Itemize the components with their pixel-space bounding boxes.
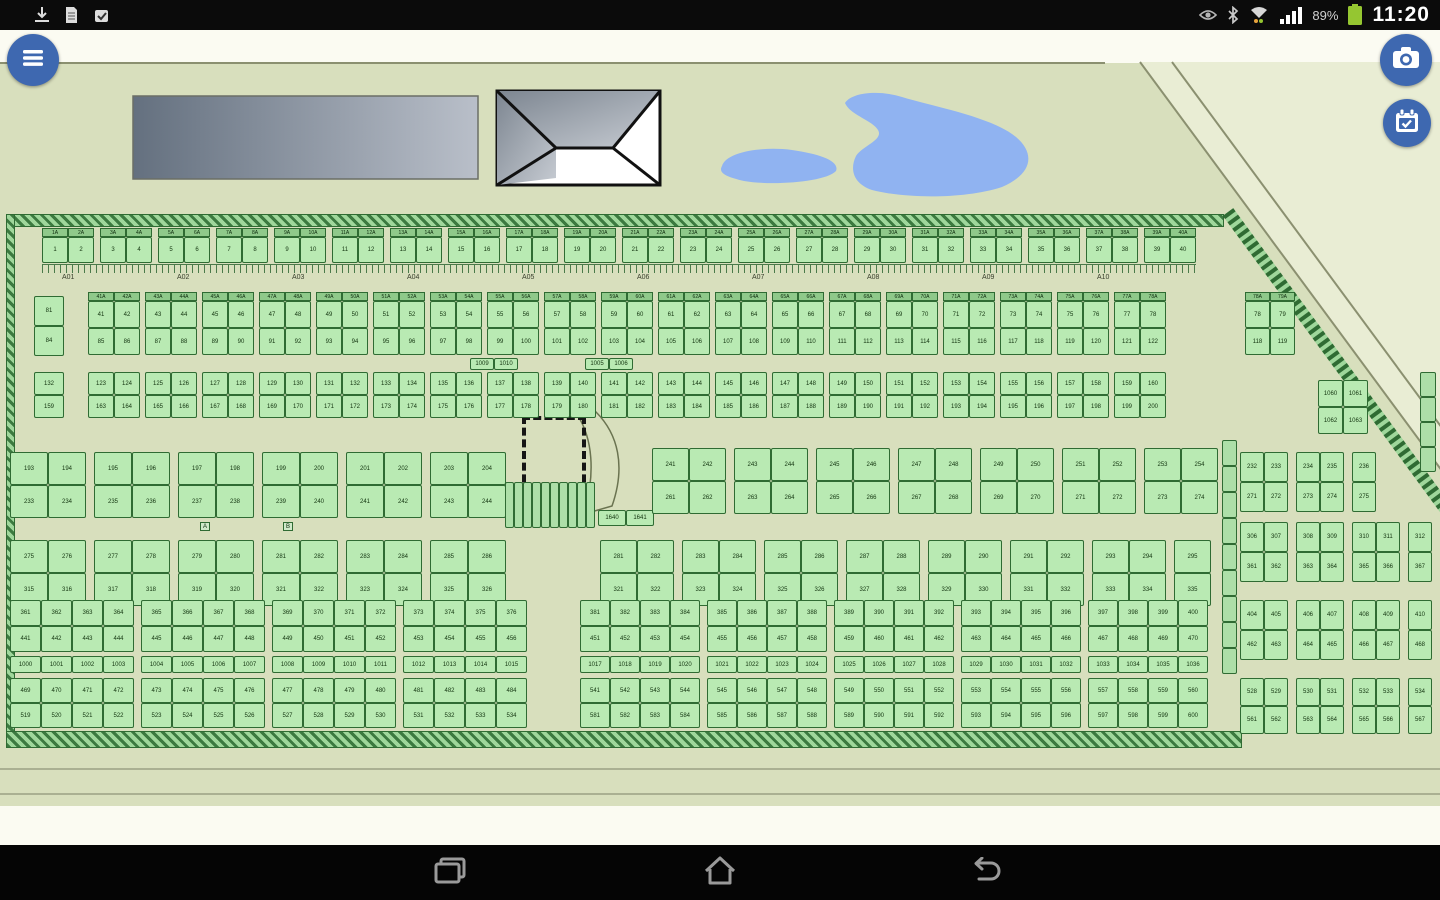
plot[interactable]: 156 xyxy=(1026,372,1052,395)
plot[interactable]: 26 xyxy=(764,237,790,263)
plot[interactable] xyxy=(1420,447,1436,472)
plot[interactable]: 474 xyxy=(172,678,203,703)
plot[interactable]: 145 xyxy=(715,372,741,395)
plot[interactable]: 458 xyxy=(797,626,827,652)
plot[interactable]: 365 xyxy=(1352,552,1376,582)
plot[interactable]: 564 xyxy=(1320,706,1344,734)
plot[interactable]: 1006 xyxy=(203,656,234,673)
plot[interactable]: 1009 xyxy=(303,656,334,673)
plot[interactable]: 45 xyxy=(202,301,228,328)
plot[interactable]: 553 xyxy=(961,678,991,703)
plot[interactable]: 582 xyxy=(610,703,640,728)
plot[interactable]: 146 xyxy=(741,372,767,395)
plot[interactable]: 159 xyxy=(1114,372,1140,395)
plot[interactable]: 196 xyxy=(132,452,170,485)
plot[interactable]: 532 xyxy=(1352,678,1376,706)
plot[interactable]: 262 xyxy=(689,481,726,514)
plot[interactable]: 84 xyxy=(34,326,64,356)
plot[interactable]: 136 xyxy=(456,372,482,395)
plot[interactable]: 198 xyxy=(216,452,254,485)
plot[interactable]: 364 xyxy=(103,600,134,626)
plot[interactable]: 140 xyxy=(570,372,596,395)
plot[interactable]: 66 xyxy=(798,301,824,328)
plot[interactable]: 151 xyxy=(886,372,912,395)
plot[interactable]: 39 xyxy=(1144,237,1170,263)
plot[interactable]: 232 xyxy=(1240,452,1264,482)
plot[interactable]: 14 xyxy=(416,237,442,263)
plot[interactable]: 119 xyxy=(1057,328,1083,355)
plot[interactable]: 118 xyxy=(1245,328,1270,355)
plot[interactable]: 128 xyxy=(228,372,254,395)
plot[interactable]: 48 xyxy=(285,301,311,328)
plot[interactable]: 114 xyxy=(912,328,938,355)
plot[interactable]: 533 xyxy=(465,703,496,728)
plot[interactable]: 596 xyxy=(1051,703,1081,728)
plot[interactable]: 168 xyxy=(228,395,254,418)
plot[interactable]: 397 xyxy=(1088,600,1118,626)
plot[interactable]: 557 xyxy=(1088,678,1118,703)
plot[interactable]: 480 xyxy=(365,678,396,703)
plot[interactable]: 453 xyxy=(403,626,434,652)
plot[interactable]: 524 xyxy=(172,703,203,728)
plot[interactable]: 153 xyxy=(943,372,969,395)
plot[interactable]: 283 xyxy=(682,540,719,573)
plot[interactable]: 593 xyxy=(961,703,991,728)
plot[interactable]: 171 xyxy=(316,395,342,418)
plot[interactable]: 447 xyxy=(203,626,234,652)
plot[interactable] xyxy=(1222,492,1237,518)
plot[interactable]: 1006 xyxy=(609,358,633,370)
plot[interactable]: 1036 xyxy=(1178,656,1208,673)
plot[interactable]: 245 xyxy=(816,448,853,481)
plot[interactable]: 484 xyxy=(496,678,527,703)
plot[interactable]: 1001 xyxy=(41,656,72,673)
plot[interactable]: 157 xyxy=(1057,372,1083,395)
plot[interactable]: 16 xyxy=(474,237,500,263)
plot[interactable]: 562 xyxy=(1264,706,1288,734)
plot[interactable]: 64 xyxy=(741,301,767,328)
plot[interactable]: 187 xyxy=(772,395,798,418)
plot[interactable]: 244 xyxy=(771,448,808,481)
plot[interactable]: 95 xyxy=(373,328,399,355)
plot[interactable]: 1011 xyxy=(365,656,396,673)
plot[interactable]: 595 xyxy=(1021,703,1051,728)
plot[interactable]: 1015 xyxy=(496,656,527,673)
home-button[interactable] xyxy=(685,853,755,893)
plot[interactable]: 195 xyxy=(94,452,132,485)
plot[interactable]: 282 xyxy=(637,540,674,573)
plot[interactable]: 283 xyxy=(346,540,384,573)
plot[interactable]: 530 xyxy=(1296,678,1320,706)
plot[interactable]: 236 xyxy=(132,485,170,518)
plot[interactable]: 112 xyxy=(855,328,881,355)
plot[interactable]: 1008 xyxy=(272,656,303,673)
plot[interactable]: 565 xyxy=(1352,706,1376,734)
plot[interactable]: 294 xyxy=(1129,540,1166,573)
plot[interactable]: 110 xyxy=(798,328,824,355)
plot[interactable]: 559 xyxy=(1148,678,1178,703)
plot[interactable]: 408 xyxy=(1352,600,1376,630)
plot[interactable]: 478 xyxy=(303,678,334,703)
plot[interactable]: 1018 xyxy=(610,656,640,673)
plot[interactable]: 310 xyxy=(1352,522,1376,552)
plot[interactable]: 270 xyxy=(1017,481,1054,514)
plot[interactable]: 361 xyxy=(10,600,41,626)
plot[interactable]: 1032 xyxy=(1051,656,1081,673)
plot[interactable]: 457 xyxy=(767,626,797,652)
plot[interactable]: 528 xyxy=(1240,678,1264,706)
plot[interactable]: 1031 xyxy=(1021,656,1051,673)
plot[interactable]: 366 xyxy=(172,600,203,626)
plot[interactable]: 144 xyxy=(684,372,710,395)
plot[interactable] xyxy=(1222,570,1237,596)
plot[interactable]: 271 xyxy=(1240,482,1264,512)
plot[interactable]: 57 xyxy=(544,301,570,328)
plot[interactable]: 543 xyxy=(640,678,670,703)
plot[interactable]: 181 xyxy=(601,395,627,418)
plot[interactable]: 465 xyxy=(1320,630,1344,660)
plot[interactable]: 475 xyxy=(203,678,234,703)
plot[interactable] xyxy=(1222,518,1237,544)
plot[interactable]: 462 xyxy=(1240,630,1264,660)
plot[interactable]: 12 xyxy=(358,237,384,263)
plot[interactable]: 244 xyxy=(468,485,506,518)
plot[interactable]: 202 xyxy=(384,452,422,485)
plot[interactable]: 394 xyxy=(991,600,1021,626)
plot[interactable] xyxy=(568,482,577,528)
plot[interactable]: 235 xyxy=(1320,452,1344,482)
plot[interactable]: 386 xyxy=(737,600,767,626)
plot[interactable]: 125 xyxy=(145,372,171,395)
plot[interactable] xyxy=(550,482,559,528)
plot[interactable]: 476 xyxy=(234,678,265,703)
plot[interactable]: 44 xyxy=(171,301,197,328)
plot[interactable]: 591 xyxy=(894,703,924,728)
plot[interactable]: 1035 xyxy=(1148,656,1178,673)
plot[interactable]: 86 xyxy=(114,328,140,355)
plot[interactable]: 160 xyxy=(1140,372,1166,395)
plot[interactable]: 468 xyxy=(1408,630,1432,660)
plot[interactable]: 11 xyxy=(332,237,358,263)
plot[interactable]: 545 xyxy=(707,678,737,703)
plot[interactable]: 97 xyxy=(430,328,456,355)
plot[interactable]: 129 xyxy=(259,372,285,395)
plot[interactable]: 9 xyxy=(274,237,300,263)
plot[interactable]: 15 xyxy=(448,237,474,263)
plot[interactable]: 55 xyxy=(487,301,513,328)
plot[interactable]: 600 xyxy=(1178,703,1208,728)
plot[interactable]: 383 xyxy=(640,600,670,626)
plot[interactable]: 1028 xyxy=(924,656,954,673)
plot[interactable]: 525 xyxy=(203,703,234,728)
plot[interactable]: 184 xyxy=(684,395,710,418)
plot[interactable]: 395 xyxy=(1021,600,1051,626)
plot[interactable]: 1019 xyxy=(640,656,670,673)
plot[interactable]: 197 xyxy=(1057,395,1083,418)
plot[interactable]: 362 xyxy=(1264,552,1288,582)
plot[interactable]: 72 xyxy=(969,301,995,328)
plot[interactable]: 234 xyxy=(48,485,86,518)
plot[interactable]: 241 xyxy=(346,485,384,518)
plot[interactable]: 583 xyxy=(640,703,670,728)
plot[interactable]: 41 xyxy=(88,301,114,328)
plot[interactable]: 19 xyxy=(564,237,590,263)
plot[interactable]: 34 xyxy=(996,237,1022,263)
plot[interactable]: 58 xyxy=(570,301,596,328)
plot[interactable]: 126 xyxy=(171,372,197,395)
plot[interactable]: 469 xyxy=(1148,626,1178,652)
plot[interactable]: 251 xyxy=(1062,448,1099,481)
plot[interactable]: 62 xyxy=(684,301,710,328)
schedule-button[interactable] xyxy=(1383,99,1431,147)
plot[interactable]: 363 xyxy=(1296,552,1320,582)
plot[interactable]: 365 xyxy=(141,600,172,626)
plot[interactable]: 242 xyxy=(384,485,422,518)
plot[interactable]: 24 xyxy=(706,237,732,263)
plot[interactable]: 133 xyxy=(373,372,399,395)
plot[interactable]: 289 xyxy=(928,540,965,573)
plot[interactable]: 242 xyxy=(689,448,726,481)
plot[interactable]: 79 xyxy=(1270,301,1295,328)
plot[interactable]: 369 xyxy=(272,600,303,626)
plot[interactable]: 246 xyxy=(853,448,890,481)
plot[interactable]: 265 xyxy=(816,481,853,514)
site-map[interactable]: 1234567891011121314151617181920212223242… xyxy=(0,30,1440,845)
plot[interactable]: 404 xyxy=(1240,600,1264,630)
plot[interactable]: 91 xyxy=(259,328,285,355)
plot[interactable]: 152 xyxy=(912,372,938,395)
plot[interactable]: 546 xyxy=(737,678,767,703)
plot[interactable]: 117 xyxy=(1000,328,1026,355)
plot[interactable]: 278 xyxy=(132,540,170,573)
plot[interactable]: 375 xyxy=(465,600,496,626)
plot[interactable]: 464 xyxy=(1296,630,1320,660)
plot[interactable]: 53 xyxy=(430,301,456,328)
plot[interactable]: 194 xyxy=(969,395,995,418)
plot[interactable]: 286 xyxy=(468,540,506,573)
plot[interactable]: 274 xyxy=(1181,481,1218,514)
plot[interactable]: 132 xyxy=(342,372,368,395)
plot[interactable]: 22 xyxy=(648,237,674,263)
plot[interactable]: 49 xyxy=(316,301,342,328)
plot[interactable]: 450 xyxy=(303,626,334,652)
plot[interactable]: 587 xyxy=(767,703,797,728)
plot[interactable]: 20 xyxy=(590,237,616,263)
plot[interactable]: 10 xyxy=(300,237,326,263)
plot[interactable]: 70 xyxy=(912,301,938,328)
plot[interactable]: 288 xyxy=(883,540,920,573)
plot[interactable]: 463 xyxy=(961,626,991,652)
plot[interactable]: 132 xyxy=(34,372,64,395)
plot[interactable]: 98 xyxy=(456,328,482,355)
plot[interactable]: 142 xyxy=(627,372,653,395)
plot[interactable]: 268 xyxy=(935,481,972,514)
plot[interactable]: 124 xyxy=(114,372,140,395)
plot[interactable]: 273 xyxy=(1296,482,1320,512)
plot[interactable]: 558 xyxy=(1118,678,1148,703)
plot[interactable]: 477 xyxy=(272,678,303,703)
plot[interactable]: 455 xyxy=(465,626,496,652)
plot[interactable]: 396 xyxy=(1051,600,1081,626)
plot[interactable]: 2 xyxy=(68,237,94,263)
plot[interactable]: 547 xyxy=(767,678,797,703)
plot[interactable]: 253 xyxy=(1144,448,1181,481)
plot[interactable]: 17 xyxy=(506,237,532,263)
plot[interactable]: 1062 xyxy=(1318,407,1343,434)
plot[interactable]: 1021 xyxy=(707,656,737,673)
plot[interactable] xyxy=(1222,544,1237,570)
plot[interactable]: 8 xyxy=(242,237,268,263)
plot[interactable]: 1033 xyxy=(1088,656,1118,673)
plot[interactable]: 30 xyxy=(880,237,906,263)
plot[interactable]: 264 xyxy=(771,481,808,514)
plot[interactable]: 56 xyxy=(513,301,539,328)
plot[interactable]: 271 xyxy=(1062,481,1099,514)
plot[interactable]: 462 xyxy=(924,626,954,652)
plot[interactable]: 272 xyxy=(1264,482,1288,512)
plot[interactable]: 293 xyxy=(1092,540,1129,573)
plot[interactable]: 529 xyxy=(334,703,365,728)
plot[interactable]: 68 xyxy=(855,301,881,328)
plot[interactable]: 167 xyxy=(202,395,228,418)
plot[interactable]: 274 xyxy=(1320,482,1344,512)
plot[interactable]: 177 xyxy=(487,395,513,418)
plot[interactable]: 89 xyxy=(202,328,228,355)
plot[interactable]: 13 xyxy=(390,237,416,263)
plot[interactable]: 548 xyxy=(797,678,827,703)
plot[interactable]: 275 xyxy=(1352,482,1376,512)
plot[interactable]: 566 xyxy=(1376,706,1400,734)
plot[interactable]: 18 xyxy=(532,237,558,263)
plot[interactable]: 532 xyxy=(434,703,465,728)
plot[interactable]: 63 xyxy=(715,301,741,328)
plot[interactable]: 174 xyxy=(399,395,425,418)
plot[interactable]: 456 xyxy=(496,626,527,652)
plot[interactable]: 526 xyxy=(234,703,265,728)
plot[interactable]: 448 xyxy=(234,626,265,652)
plot[interactable]: 92 xyxy=(285,328,311,355)
plot[interactable]: 1003 xyxy=(103,656,134,673)
plot[interactable]: 190 xyxy=(855,395,881,418)
plot[interactable]: 373 xyxy=(403,600,434,626)
plot[interactable]: 250 xyxy=(1017,448,1054,481)
plot[interactable]: 266 xyxy=(853,481,890,514)
plot[interactable]: 468 xyxy=(1118,626,1148,652)
back-button[interactable] xyxy=(950,853,1020,893)
menu-button[interactable] xyxy=(7,34,59,86)
plot[interactable]: 590 xyxy=(864,703,894,728)
plot[interactable]: 122 xyxy=(1140,328,1166,355)
plot[interactable]: 166 xyxy=(171,395,197,418)
plot[interactable]: 1005 xyxy=(172,656,203,673)
plot[interactable]: 154 xyxy=(969,372,995,395)
plot[interactable]: 466 xyxy=(1051,626,1081,652)
plot[interactable]: 446 xyxy=(172,626,203,652)
plot[interactable]: 521 xyxy=(72,703,103,728)
plot[interactable]: 361 xyxy=(1240,552,1264,582)
plot[interactable]: 284 xyxy=(384,540,422,573)
plot[interactable]: 520 xyxy=(41,703,72,728)
plot[interactable]: 534 xyxy=(1408,678,1432,706)
plot[interactable]: 185 xyxy=(715,395,741,418)
plot[interactable]: 367 xyxy=(1408,552,1432,582)
plot[interactable]: 38 xyxy=(1112,237,1138,263)
plot[interactable]: 307 xyxy=(1264,522,1288,552)
plot[interactable]: 198 xyxy=(1083,395,1109,418)
plot[interactable]: 119 xyxy=(1270,328,1295,355)
plot[interactable]: 164 xyxy=(114,395,140,418)
plot[interactable]: 467 xyxy=(1088,626,1118,652)
plot[interactable]: 54 xyxy=(456,301,482,328)
plot[interactable]: 21 xyxy=(622,237,648,263)
plot[interactable]: 4 xyxy=(126,237,152,263)
plot[interactable]: 277 xyxy=(94,540,132,573)
plot[interactable]: 28 xyxy=(822,237,848,263)
plot[interactable]: 173 xyxy=(373,395,399,418)
plot[interactable]: 1005 xyxy=(585,358,609,370)
plot[interactable]: 7 xyxy=(216,237,242,263)
plot[interactable]: 597 xyxy=(1088,703,1118,728)
plot[interactable]: 390 xyxy=(864,600,894,626)
plot[interactable] xyxy=(1222,622,1237,648)
plot[interactable]: 247 xyxy=(898,448,935,481)
plot[interactable]: 183 xyxy=(658,395,684,418)
plot[interactable]: 530 xyxy=(365,703,396,728)
plot[interactable]: 103 xyxy=(601,328,627,355)
plot[interactable]: 1013 xyxy=(434,656,465,673)
plot[interactable]: 449 xyxy=(272,626,303,652)
plot[interactable]: 192 xyxy=(912,395,938,418)
plot[interactable]: 3 xyxy=(100,237,126,263)
plot[interactable]: 59 xyxy=(601,301,627,328)
plot[interactable] xyxy=(577,482,586,528)
plot[interactable]: 481 xyxy=(403,678,434,703)
plot[interactable]: 134 xyxy=(399,372,425,395)
plot[interactable]: 200 xyxy=(300,452,338,485)
plot[interactable]: 459 xyxy=(834,626,864,652)
plot[interactable]: 96 xyxy=(399,328,425,355)
plot[interactable]: 287 xyxy=(846,540,883,573)
plot[interactable]: 87 xyxy=(145,328,171,355)
plot[interactable]: 367 xyxy=(203,600,234,626)
plot[interactable]: 295 xyxy=(1174,540,1211,573)
plot[interactable]: 243 xyxy=(734,448,771,481)
plot[interactable]: 1000 xyxy=(10,656,41,673)
plot[interactable]: 254 xyxy=(1181,448,1218,481)
plot[interactable]: 453 xyxy=(640,626,670,652)
plot[interactable]: 550 xyxy=(864,678,894,703)
plot[interactable]: 240 xyxy=(300,485,338,518)
plot[interactable]: 23 xyxy=(680,237,706,263)
plot[interactable]: 409 xyxy=(1376,600,1400,630)
plot[interactable]: 306 xyxy=(1240,522,1264,552)
plot[interactable]: 1022 xyxy=(737,656,767,673)
plot[interactable]: 410 xyxy=(1408,600,1432,630)
plot[interactable]: 1017 xyxy=(580,656,610,673)
plot[interactable]: 388 xyxy=(797,600,827,626)
plot[interactable]: 71 xyxy=(943,301,969,328)
plot[interactable]: 47 xyxy=(259,301,285,328)
plot[interactable]: 398 xyxy=(1118,600,1148,626)
plot[interactable]: 276 xyxy=(48,540,86,573)
plot[interactable]: 1002 xyxy=(72,656,103,673)
plot[interactable]: 1034 xyxy=(1118,656,1148,673)
plot[interactable]: 561 xyxy=(1240,706,1264,734)
plot[interactable]: 203 xyxy=(430,452,468,485)
plot[interactable]: 460 xyxy=(864,626,894,652)
plot[interactable]: 267 xyxy=(898,481,935,514)
plot[interactable] xyxy=(586,482,595,528)
